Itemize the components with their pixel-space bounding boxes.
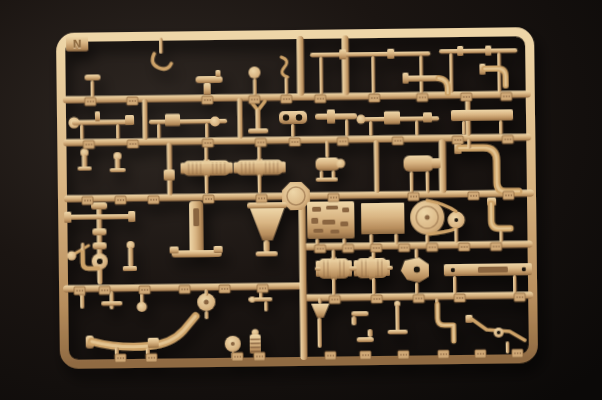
part-number-tag bbox=[82, 196, 93, 204]
part-number-tag bbox=[255, 138, 266, 146]
part-number-tag bbox=[146, 354, 157, 362]
part-number-tag bbox=[501, 92, 512, 100]
part-number-tag bbox=[371, 244, 382, 252]
part-number-tag bbox=[459, 243, 470, 251]
part-number-tag bbox=[202, 96, 213, 104]
part-number-tag bbox=[315, 95, 326, 103]
part-number-tag bbox=[514, 293, 525, 301]
part-number-tag bbox=[115, 196, 126, 204]
part-number-tag bbox=[512, 349, 523, 357]
part-number-tag bbox=[454, 294, 465, 302]
part-number-tag bbox=[139, 286, 150, 294]
part-number-tag bbox=[328, 193, 339, 201]
sprue-photo-canvas: N N bbox=[0, 0, 602, 400]
part-number-tag bbox=[371, 295, 382, 303]
part-number-tag bbox=[417, 93, 428, 101]
part-number-tag bbox=[127, 140, 138, 148]
part-number-tag bbox=[115, 354, 126, 362]
part-number-tag bbox=[413, 294, 424, 302]
part-number-tag bbox=[503, 191, 514, 199]
runner-rail-v5 bbox=[142, 99, 148, 140]
part-number-tag bbox=[74, 287, 85, 295]
runner-rail-v6 bbox=[237, 98, 243, 139]
part-number-tag bbox=[256, 194, 267, 202]
part-number-tag bbox=[232, 353, 243, 361]
part-number-tag bbox=[289, 138, 300, 146]
part-number-tag bbox=[475, 350, 486, 358]
part-number-tag bbox=[179, 285, 190, 293]
part-number-tag bbox=[438, 350, 449, 358]
part-number-tag bbox=[249, 95, 260, 103]
part-number-tag bbox=[337, 137, 348, 145]
part-number-tag bbox=[99, 286, 110, 294]
runner-rail-v9 bbox=[374, 140, 380, 193]
part-number-tag bbox=[408, 193, 419, 201]
part-number-tag bbox=[343, 244, 354, 252]
part-number-tag bbox=[502, 135, 513, 143]
part-number-tag bbox=[399, 244, 410, 252]
part-number-tag bbox=[392, 137, 403, 145]
part-number-tag bbox=[127, 97, 138, 105]
part-number-tag bbox=[148, 196, 159, 204]
sprue-letter-embossed: N N bbox=[72, 38, 81, 52]
part-number-tag bbox=[254, 352, 265, 360]
part-number-tag bbox=[427, 243, 438, 251]
runner-rail-v1 bbox=[297, 36, 305, 96]
part-number-tag bbox=[329, 295, 340, 303]
part-number-tag bbox=[461, 93, 472, 101]
part-number-tag bbox=[203, 195, 214, 203]
part-number-tag bbox=[398, 351, 409, 359]
part-number-tag bbox=[360, 351, 371, 359]
part-number-tag bbox=[315, 245, 326, 253]
runner-rail-v2 bbox=[342, 35, 350, 95]
part-number-tag bbox=[219, 285, 230, 293]
part-number-tag bbox=[452, 136, 463, 144]
part-number-tag bbox=[202, 139, 213, 147]
part-number-tag bbox=[257, 284, 268, 292]
part-number-tag bbox=[281, 95, 292, 103]
model-kit-sprue-photo: N N bbox=[0, 0, 602, 400]
part-number-tag bbox=[369, 94, 380, 102]
part-number-tag bbox=[325, 352, 336, 360]
part-number-tag bbox=[83, 140, 94, 148]
part-number-tag bbox=[491, 243, 502, 251]
sprue-letter: N bbox=[72, 38, 81, 51]
part-number-tag bbox=[468, 192, 479, 200]
part-number-tag bbox=[85, 97, 96, 105]
